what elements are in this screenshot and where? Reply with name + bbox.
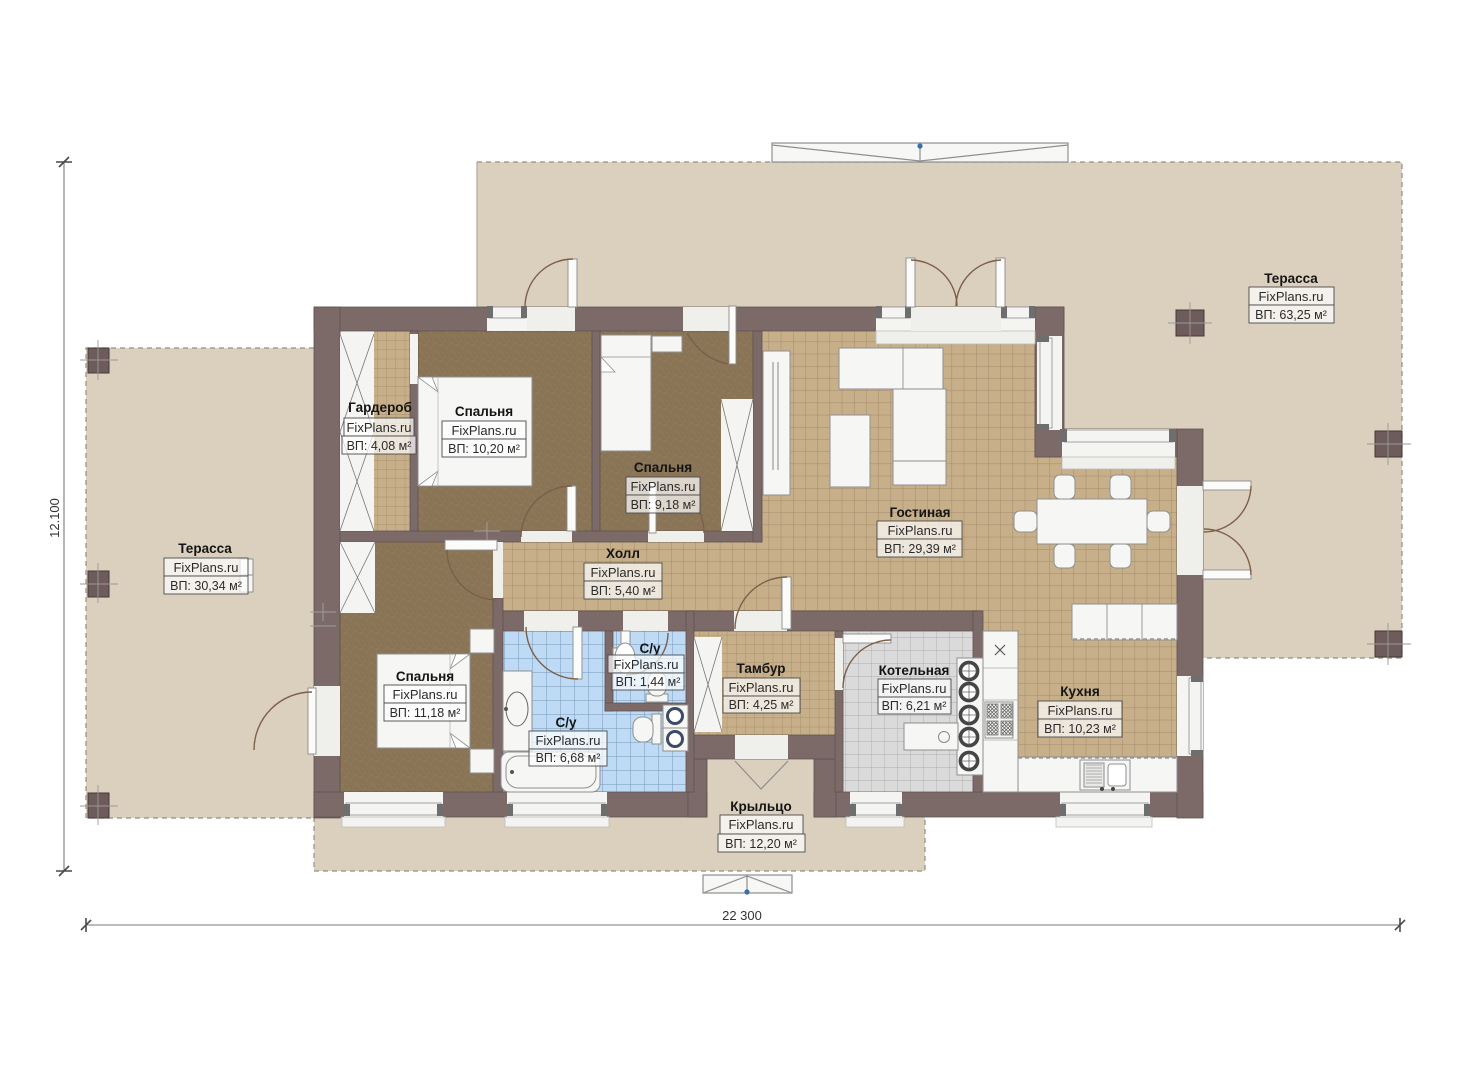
svg-text:12.100: 12.100 [47,498,62,538]
svg-text:22 300: 22 300 [722,908,762,923]
svg-text:FixPlans.ru: FixPlans.ru [392,687,457,702]
svg-text:FixPlans.ru: FixPlans.ru [346,420,411,435]
svg-text:Крыльцо: Крыльцо [730,799,791,814]
svg-text:ВП: 10,23 м²: ВП: 10,23 м² [1044,722,1116,736]
svg-text:FixPlans.ru: FixPlans.ru [535,733,600,748]
svg-text:ВП: 6,68 м²: ВП: 6,68 м² [536,751,601,765]
svg-text:Котельная: Котельная [879,663,950,678]
svg-text:FixPlans.ru: FixPlans.ru [173,560,238,575]
svg-text:Терасса: Терасса [178,541,232,556]
svg-text:ВП: 12,20 м²: ВП: 12,20 м² [725,837,797,851]
svg-text:ВП: 10,20 м²: ВП: 10,20 м² [448,442,520,456]
svg-text:FixPlans.ru: FixPlans.ru [728,680,793,695]
svg-text:Спальня: Спальня [455,404,513,419]
svg-text:ВП: 4,08 м²: ВП: 4,08 м² [347,439,412,453]
svg-text:С/у: С/у [639,641,661,656]
svg-text:ВП: 4,25 м²: ВП: 4,25 м² [729,698,794,712]
svg-text:Спальня: Спальня [396,669,454,684]
svg-text:FixPlans.ru: FixPlans.ru [728,817,793,832]
svg-text:С/у: С/у [555,715,577,730]
svg-text:ВП: 11,18 м²: ВП: 11,18 м² [390,706,461,720]
svg-text:ВП: 30,34 м²: ВП: 30,34 м² [170,579,242,593]
svg-text:Кухня: Кухня [1060,684,1099,699]
svg-text:FixPlans.ru: FixPlans.ru [630,479,695,494]
svg-text:FixPlans.ru: FixPlans.ru [1258,289,1323,304]
svg-text:ВП: 9,18 м²: ВП: 9,18 м² [631,498,696,512]
svg-text:Холл: Холл [606,546,640,561]
svg-text:FixPlans.ru: FixPlans.ru [590,565,655,580]
svg-text:Гардероб: Гардероб [348,400,412,415]
svg-text:ВП: 5,40 м²: ВП: 5,40 м² [591,584,656,598]
svg-text:Спальня: Спальня [634,460,692,475]
svg-text:Гостиная: Гостиная [889,505,950,520]
svg-text:Тамбур: Тамбур [737,661,786,676]
svg-text:ВП: 63,25 м²: ВП: 63,25 м² [1255,308,1327,322]
svg-text:FixPlans.ru: FixPlans.ru [451,423,516,438]
svg-text:ВП: 1,44 м²: ВП: 1,44 м² [616,675,681,689]
svg-text:FixPlans.ru: FixPlans.ru [881,681,946,696]
svg-text:FixPlans.ru: FixPlans.ru [613,657,678,672]
svg-text:FixPlans.ru: FixPlans.ru [1047,703,1112,718]
svg-text:FixPlans.ru: FixPlans.ru [887,523,952,538]
svg-text:Терасса: Терасса [1264,271,1318,286]
svg-text:ВП: 29,39 м²: ВП: 29,39 м² [884,542,956,556]
svg-text:ВП: 6,21 м²: ВП: 6,21 м² [882,699,947,713]
